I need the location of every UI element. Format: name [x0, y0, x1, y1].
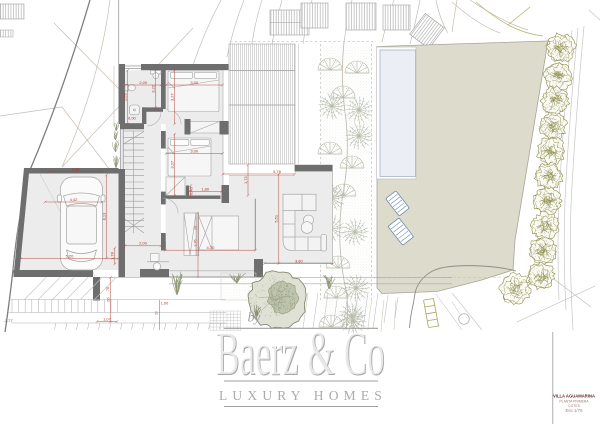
svg-text:5,20: 5,20 [66, 253, 75, 258]
svg-text:1,07: 1,07 [103, 316, 112, 321]
svg-text:VILLA AGUAMARINA: VILLA AGUAMARINA [553, 394, 595, 399]
svg-text:0,00: 0,00 [128, 116, 137, 121]
svg-text:3,80: 3,80 [295, 258, 304, 263]
svg-text:3,76: 3,76 [194, 240, 198, 247]
svg-text:20: 20 [155, 311, 159, 315]
svg-text:20: 20 [105, 297, 110, 302]
svg-text:1,72: 1,72 [243, 175, 248, 184]
svg-text:2,00: 2,00 [139, 80, 148, 85]
svg-text:1,80: 1,80 [201, 186, 210, 191]
svg-text:2,63: 2,63 [122, 92, 127, 101]
svg-text:20: 20 [194, 226, 198, 230]
svg-text:8,13: 8,13 [101, 212, 106, 221]
svg-text:5,51: 5,51 [274, 214, 279, 223]
svg-text:Esc 1/75: Esc 1/75 [565, 408, 583, 413]
svg-text:3,22: 3,22 [150, 84, 155, 93]
svg-text:0,40: 0,40 [189, 186, 194, 195]
svg-text:2,00: 2,00 [139, 241, 148, 246]
svg-text:3,27: 3,27 [169, 160, 174, 169]
svg-text:3,83: 3,83 [72, 166, 81, 171]
svg-text:1,78: 1,78 [110, 251, 115, 260]
svg-text:3,00: 3,00 [190, 148, 199, 153]
svg-text:Baerz & Co: Baerz & Co [216, 319, 385, 388]
svg-text:5,78: 5,78 [273, 169, 282, 174]
svg-text:78: 78 [106, 287, 110, 291]
svg-text:3,27: 3,27 [169, 92, 174, 101]
svg-text:PLANTA PRIMERA: PLANTA PRIMERA [559, 400, 589, 404]
svg-text:4,70: 4,70 [207, 245, 216, 250]
svg-text:1,00: 1,00 [161, 302, 168, 306]
svg-text:3,00: 3,00 [190, 80, 199, 85]
svg-text:4,42: 4,42 [70, 197, 79, 202]
svg-text:LUXURY HOMES: LUXURY HOMES [219, 388, 387, 403]
svg-text:-1,77: -1,77 [4, 318, 14, 323]
